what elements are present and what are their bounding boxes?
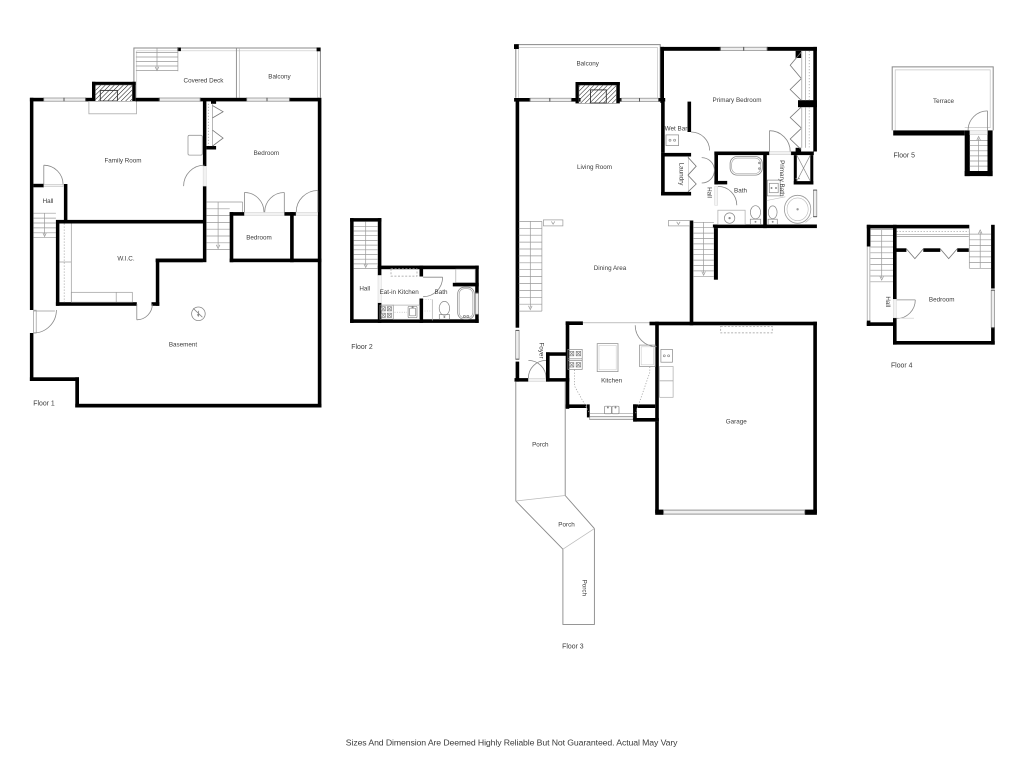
svg-text:Porch: Porch <box>532 441 549 448</box>
svg-text:Balcony: Balcony <box>576 60 599 67</box>
svg-text:Terrace: Terrace <box>933 98 954 105</box>
svg-text:Porch: Porch <box>558 522 575 529</box>
svg-text:Hall: Hall <box>43 198 54 205</box>
svg-text:Bedroom: Bedroom <box>254 150 280 157</box>
svg-text:Hall: Hall <box>359 285 370 292</box>
svg-text:W.I.C.: W.I.C. <box>117 255 134 262</box>
svg-text:Floor 3: Floor 3 <box>562 643 584 650</box>
svg-text:Eat-in Kitchen: Eat-in Kitchen <box>380 289 420 296</box>
svg-text:Balcony: Balcony <box>268 73 291 80</box>
svg-text:Hall: Hall <box>884 296 891 307</box>
svg-text:Bath: Bath <box>734 187 747 194</box>
svg-text:Basement: Basement <box>169 341 198 348</box>
svg-text:Hall: Hall <box>705 187 712 198</box>
svg-text:Sizes And Dimension Are Deemed: Sizes And Dimension Are Deemed Highly Re… <box>346 738 678 748</box>
svg-text:Floor 5: Floor 5 <box>893 153 915 160</box>
svg-text:Floor 2: Floor 2 <box>351 344 373 351</box>
svg-text:Laundry: Laundry <box>678 163 685 187</box>
svg-text:Bath: Bath <box>435 289 448 296</box>
svg-text:Primary Bedroom: Primary Bedroom <box>713 97 762 104</box>
svg-text:Foyer: Foyer <box>537 342 544 358</box>
svg-text:Covered Deck: Covered Deck <box>184 77 225 84</box>
svg-text:Bedroom: Bedroom <box>246 235 272 242</box>
svg-text:Living Room: Living Room <box>577 164 612 171</box>
svg-text:Garage: Garage <box>726 419 748 426</box>
svg-text:Bedroom: Bedroom <box>929 297 955 304</box>
svg-text:Porch: Porch <box>580 580 587 597</box>
svg-text:Family Room: Family Room <box>104 157 141 164</box>
svg-text:Dining Area: Dining Area <box>594 265 627 272</box>
svg-text:Primary Bath: Primary Bath <box>778 160 785 197</box>
svg-text:Floor 1: Floor 1 <box>33 401 55 408</box>
svg-text:Floor 4: Floor 4 <box>891 363 913 370</box>
svg-text:Wet Bar: Wet Bar <box>665 126 688 133</box>
svg-text:Kitchen: Kitchen <box>601 377 623 384</box>
